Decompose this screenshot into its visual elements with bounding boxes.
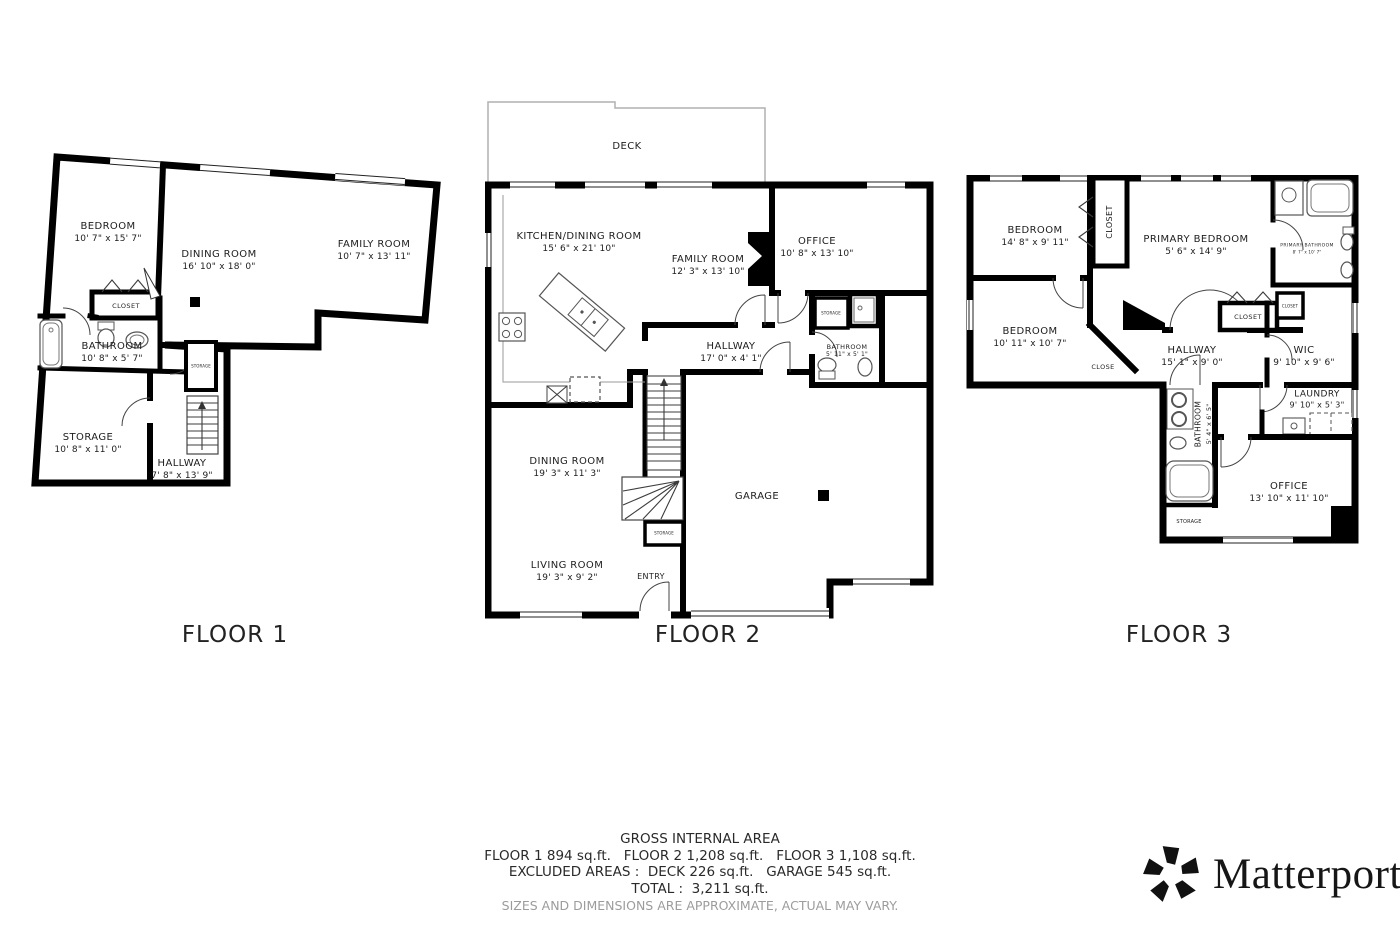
room-label-bathroom: BATHROOM10' 8" x 5' 7"	[81, 341, 142, 365]
floor2-hall-top-wall	[645, 325, 772, 338]
door-arc-icon	[63, 308, 90, 335]
room-label-primary-bedroom: PRIMARY BEDROOM5' 6" x 14' 9"	[1143, 234, 1248, 258]
room-label-family-room: FAMILY ROOM12' 3" x 13' 10"	[671, 254, 744, 278]
room-label-living-room: LIVING ROOM19' 3" x 9' 2"	[531, 560, 603, 584]
room-label-bathroom: BATHROOM 5' 11" x 5' 1"	[826, 343, 868, 359]
room-label-kitchen-dining: KITCHEN/DINING ROOM15' 6" x 21' 10"	[516, 231, 641, 255]
room-label-close: CLOSE	[1091, 363, 1114, 371]
matterport-logo: Matterport®	[1141, 843, 1400, 905]
door-arc-icon	[122, 398, 150, 426]
toilet-icon	[818, 358, 836, 379]
room-label-dining-room: DINING ROOM16' 10" x 18' 0"	[181, 249, 256, 273]
window-icon	[110, 157, 405, 185]
washer-dryer-icon	[1310, 413, 1352, 435]
floor1-bathroom-bottom-wall	[40, 368, 190, 372]
room-label-office: OFFICE13' 10" x 11' 10"	[1249, 481, 1328, 505]
entry-opening	[639, 607, 671, 622]
room-label-entry: ENTRY	[637, 572, 665, 582]
room-label-closet-tall: CLOSET	[1105, 205, 1115, 238]
door-arc-icon	[1221, 437, 1251, 467]
bathtub-icon	[40, 320, 62, 368]
stove-icon	[499, 313, 525, 341]
room-label-storage-small: STORAGE	[191, 364, 211, 369]
room-label-deck: DECK	[612, 141, 641, 154]
room-label-garage: GARAGE	[735, 491, 779, 504]
door-arc-icon	[640, 582, 669, 611]
kitchen-island-icon	[539, 273, 624, 351]
bathroom-door-opening	[1170, 380, 1200, 389]
room-label-closet: CLOSET	[112, 302, 140, 310]
room-label-bathroom-name: BATHROOM	[1193, 401, 1202, 448]
door-arc-icon	[760, 342, 790, 372]
floor-3-plan: BEDROOM14' 8" x 9' 11" CLOSET PRIMARY BE…	[965, 175, 1365, 550]
matterport-pinwheel-icon	[1141, 843, 1203, 905]
room-label-hallway: HALLWAY15' 1" x 9' 0"	[1161, 345, 1222, 369]
room-label-bathroom-dims: 5' 4" x 6' 5"	[1205, 404, 1213, 445]
floor1-bedroom-wall	[158, 165, 163, 298]
floor-2-title: FLOOR 2	[655, 622, 761, 648]
room-label-dining-room: DINING ROOM19' 3" x 11' 3"	[529, 456, 604, 480]
bathtub-icon	[1166, 461, 1213, 501]
stair-void	[1123, 300, 1165, 330]
door-arc-icon	[778, 293, 808, 323]
stairs-winder-icon	[622, 477, 683, 520]
door-arc-icon	[1053, 278, 1083, 308]
dishwasher-icon	[547, 386, 567, 403]
bathtub-icon	[1307, 180, 1353, 216]
room-label-primary-bathroom: PRIMARY BATHROOM8' 7" x 10' 7"	[1280, 244, 1334, 255]
column-icon	[190, 297, 200, 307]
room-label-bedroom: BEDROOM10' 7" x 15' 7"	[74, 221, 141, 245]
room-label-laundry: LAUNDRY 9' 10" x 5' 3"	[1290, 389, 1345, 410]
room-label-storage: STORAGE	[1176, 519, 1201, 525]
room-label-storage-upper: STORAGE	[821, 311, 841, 316]
room-label-wic: WIC9' 10" x 9' 6"	[1273, 345, 1334, 369]
room-label-storage: STORAGE10' 8" x 11' 0"	[54, 432, 121, 456]
door-arc-icon	[735, 295, 765, 325]
garage-door-icon	[691, 608, 829, 621]
stairs-icon	[647, 376, 681, 470]
floor-1-plan: BEDROOM10' 7" x 15' 7" DINING ROOM16' 10…	[30, 150, 450, 495]
room-label-storage-lower: STORAGE	[654, 531, 674, 536]
laundry-sink-icon	[1283, 418, 1305, 434]
room-label-office: OFFICE10' 8" x 13' 10"	[780, 236, 853, 260]
toilet-icon	[1170, 437, 1186, 449]
room-label-bedroom2: BEDROOM10' 11" x 10' 7"	[993, 326, 1066, 350]
room-label-family-room: FAMILY ROOM10' 7" x 13' 11"	[337, 239, 410, 263]
floor-1-title: FLOOR 1	[182, 622, 288, 648]
chimney-icon	[1331, 506, 1355, 540]
room-label-closet-b: CLOSET	[1282, 304, 1298, 309]
room-label-hallway: HALLWAY7' 8" x 13' 9"	[151, 458, 212, 482]
stairs-icon	[187, 396, 218, 454]
room-label-closet-a: CLOSET	[1234, 313, 1262, 321]
floor-3-title: FLOOR 3	[1126, 622, 1232, 648]
sink-icon	[1167, 389, 1193, 429]
brand-name: Matterport®	[1213, 849, 1400, 899]
refrigerator-icon	[570, 377, 600, 402]
column-icon	[818, 490, 829, 501]
floor-2-plan: DECK KITCHEN/DINING ROOM15' 6" x 21' 10"…	[485, 95, 935, 625]
sink-icon	[858, 358, 872, 376]
door-arc-icon	[1260, 385, 1287, 412]
floor-plan-sheet: BEDROOM10' 7" x 15' 7" DINING ROOM16' 10…	[0, 0, 1400, 933]
room-label-hallway: HALLWAY17' 0" x 4' 1"	[700, 341, 761, 365]
sink-icon	[1275, 181, 1303, 215]
room-label-bedroom1: BEDROOM14' 8" x 9' 11"	[1001, 225, 1068, 249]
floor1-bathroom-top-wall	[40, 316, 96, 317]
shower-icon	[850, 294, 878, 326]
